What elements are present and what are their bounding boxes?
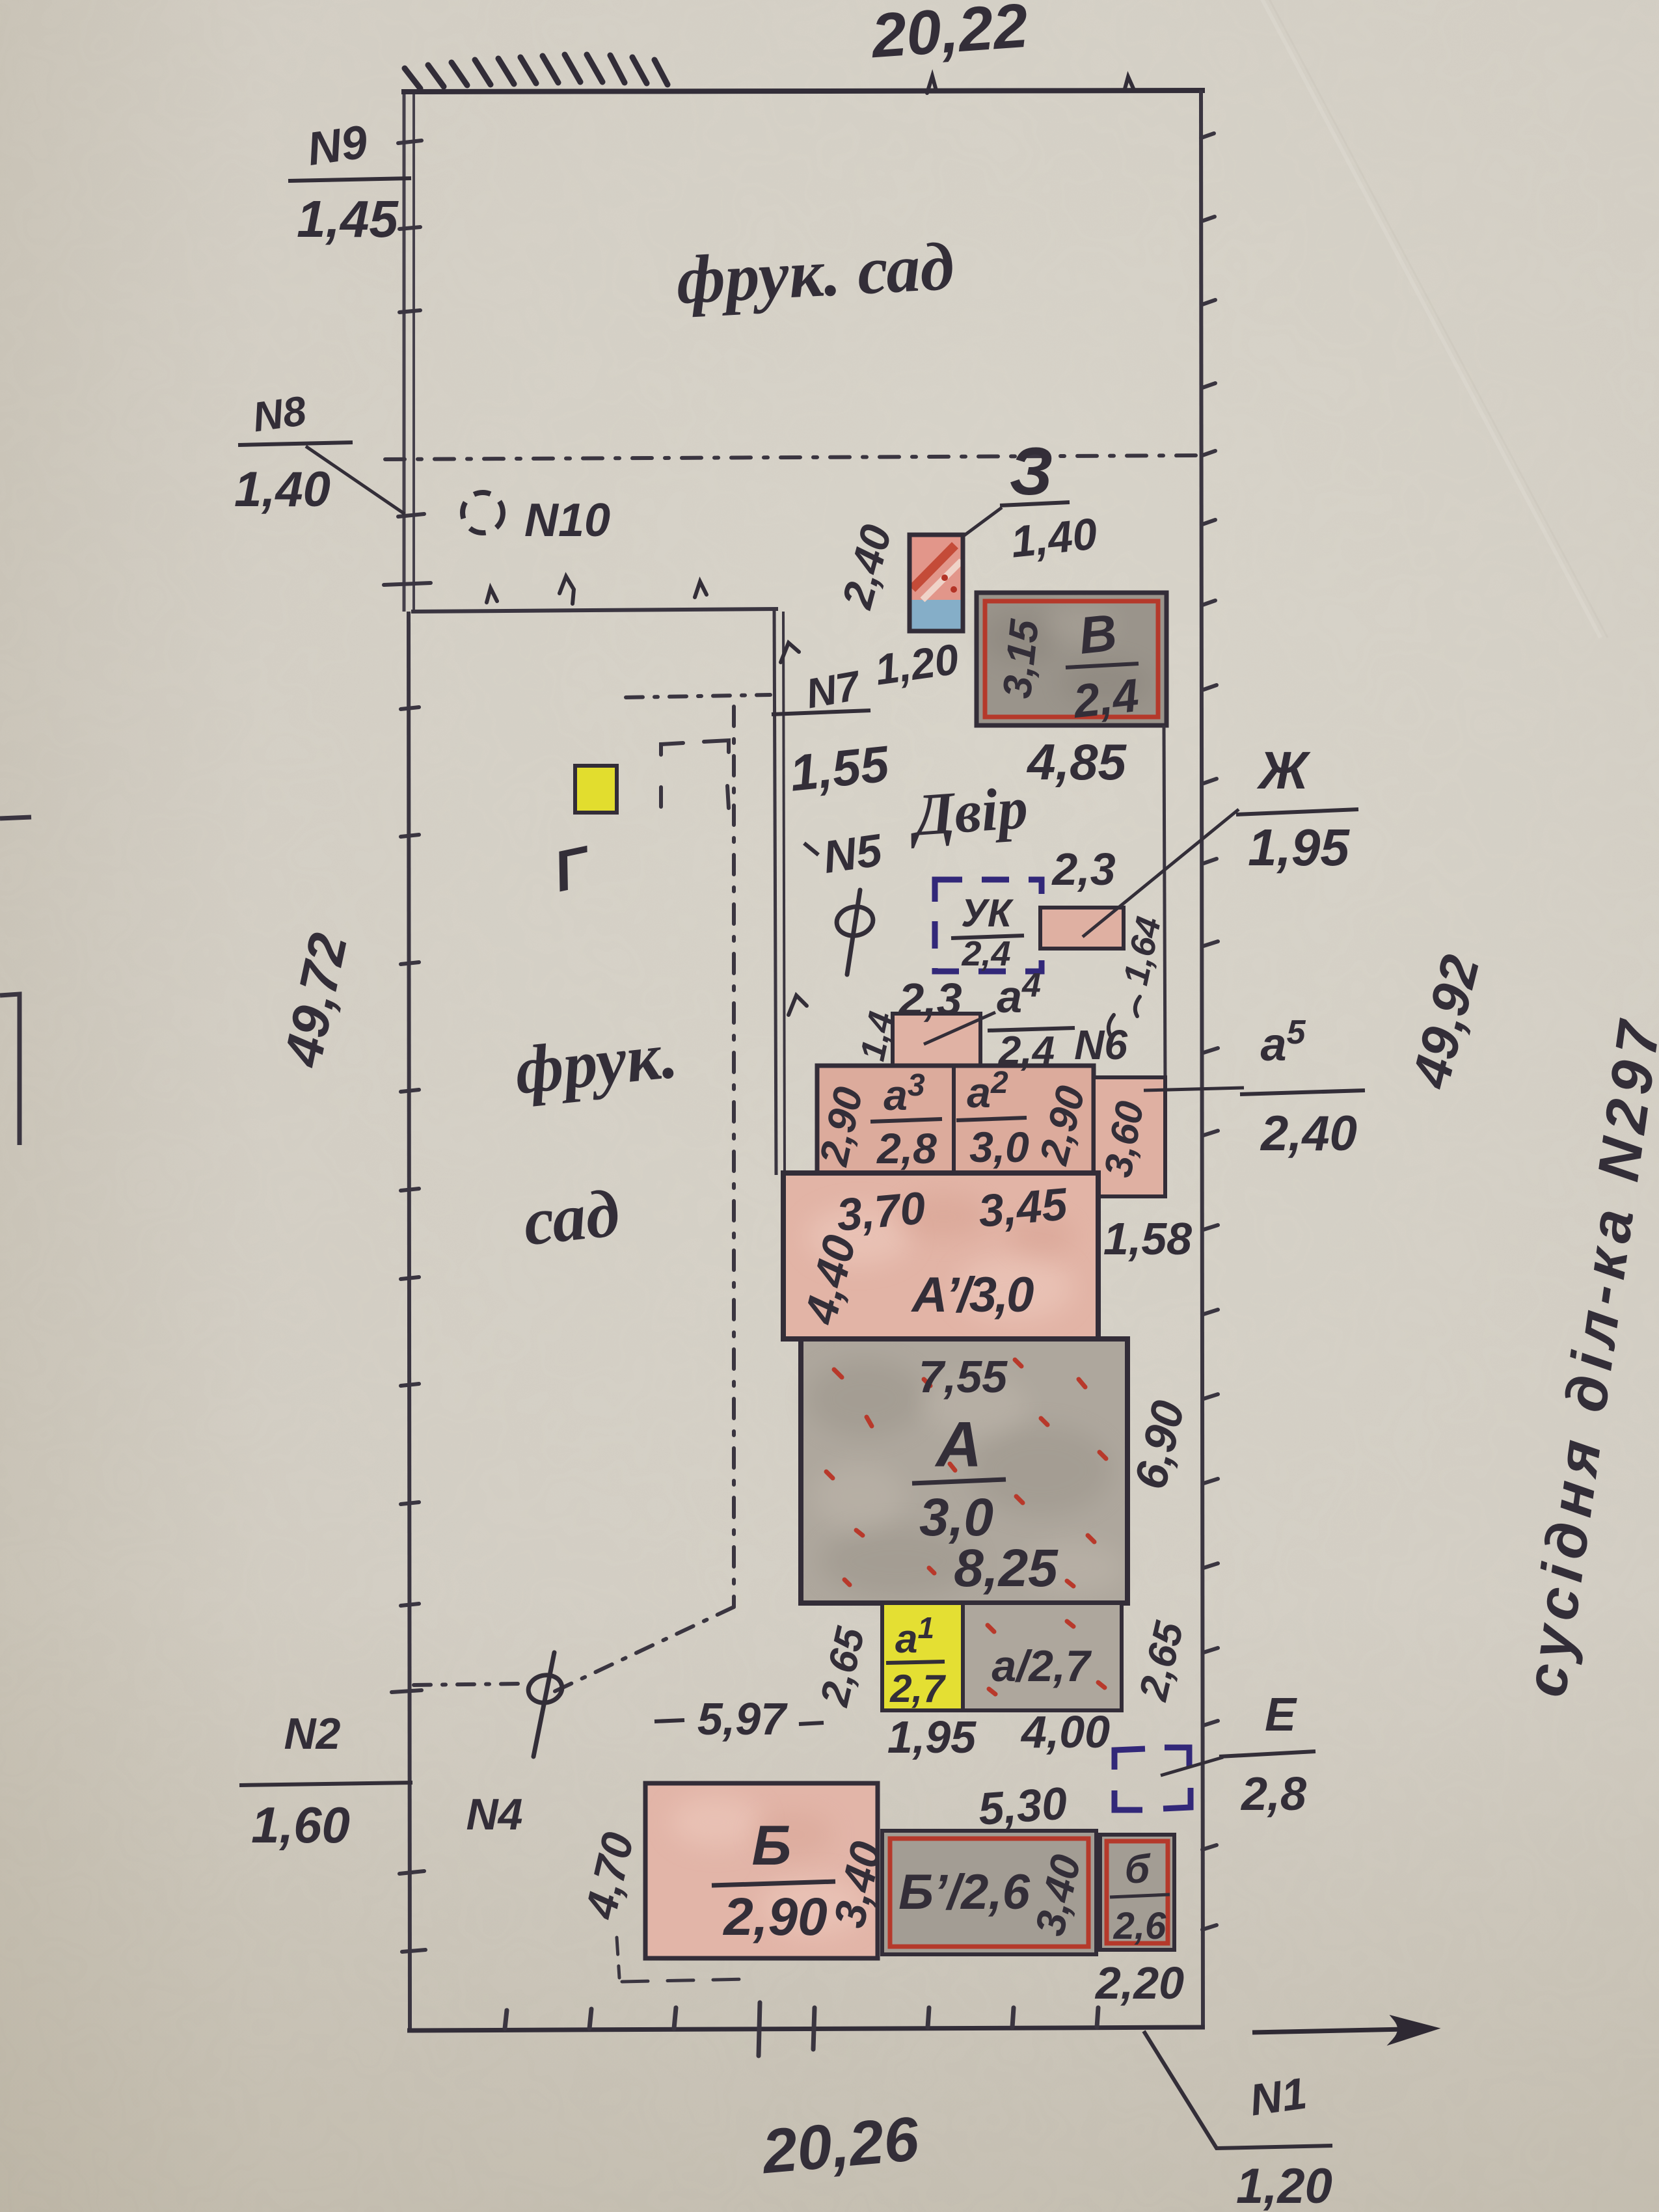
svg-text:20,22: 20,22 [868,0,1030,71]
svg-text:8,25: 8,25 [954,1539,1059,1598]
svg-text:7,55: 7,55 [919,1351,1008,1402]
svg-text:З: З [1010,434,1053,509]
svg-text:Б: Б [752,1814,792,1877]
svg-text:2,8: 2,8 [1240,1768,1306,1820]
svg-text:4,85: 4,85 [1026,733,1127,790]
svg-text:б: б [1125,1847,1151,1892]
svg-text:1,20: 1,20 [1236,2159,1332,2212]
svg-text:1,95: 1,95 [1248,818,1350,876]
svg-text:2,7: 2,7 [889,1667,946,1710]
svg-text:N2: N2 [284,1709,341,1759]
svg-text:3,15: 3,15 [995,617,1047,701]
svg-text:Ж: Ж [1256,741,1311,800]
svg-text:1,58: 1,58 [1103,1213,1192,1264]
svg-text:5,30: 5,30 [977,1777,1068,1834]
svg-text:3,70: 3,70 [835,1182,928,1241]
svg-text:2,8: 2,8 [876,1124,937,1172]
svg-text:1,40: 1,40 [1008,509,1099,567]
svg-text:N5: N5 [820,824,886,883]
svg-text:Е: Е [1265,1689,1297,1741]
svg-text:1,60: 1,60 [251,1796,350,1854]
svg-text:2,40: 2,40 [1260,1106,1357,1161]
svg-text:N6: N6 [1074,1021,1127,1068]
svg-text:А: А [934,1409,982,1480]
svg-text:N7: N7 [802,662,865,718]
svg-text:4,00: 4,00 [1020,1706,1110,1757]
svg-text:1,45: 1,45 [297,190,399,248]
svg-text:Двір: Двір [907,774,1030,848]
svg-text:3,45: 3,45 [977,1178,1070,1237]
svg-text:1,95: 1,95 [887,1712,977,1762]
svg-text:1,40: 1,40 [234,462,330,517]
svg-text:Аʼ/3,0: Аʼ/3,0 [911,1267,1034,1323]
svg-text:3,0: 3,0 [969,1123,1029,1171]
svg-text:УК: УК [961,891,1014,935]
svg-text:20,26: 20,26 [758,2104,921,2187]
svg-text:2,3: 2,3 [897,974,962,1025]
svg-text:сад: сад [520,1176,623,1260]
svg-text:а/2,7: а/2,7 [991,1641,1092,1691]
svg-text:N10: N10 [524,494,610,546]
svg-text:N4: N4 [466,1790,523,1839]
svg-text:2,3: 2,3 [1051,844,1115,895]
svg-text:2,90: 2,90 [722,1887,828,1947]
svg-text:N9: N9 [304,116,370,176]
svg-text:фрук. сад: фрук. сад [675,228,956,318]
svg-text:2,4: 2,4 [961,934,1010,973]
svg-text:N1: N1 [1247,2068,1310,2125]
svg-text:2,4: 2,4 [1070,669,1141,728]
svg-text:5,97: 5,97 [697,1693,788,1744]
svg-text:Бʼ/2,6: Бʼ/2,6 [898,1865,1030,1920]
svg-text:2,20: 2,20 [1094,1958,1184,2008]
svg-text:N8: N8 [250,387,309,441]
svg-text:В: В [1076,603,1120,665]
svg-text:1,55: 1,55 [787,735,893,802]
svg-text:2,6: 2,6 [1113,1905,1167,1947]
